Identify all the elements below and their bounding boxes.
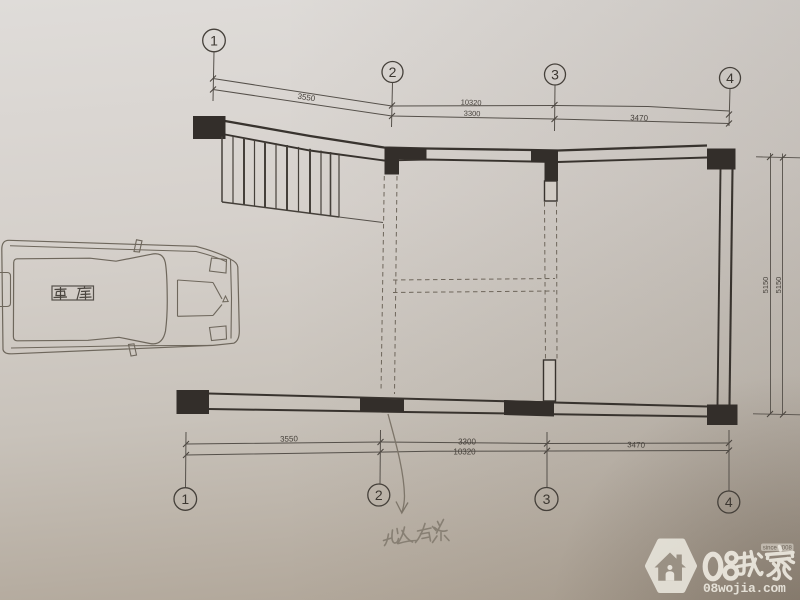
- svg-text:since 2008: since 2008: [763, 546, 793, 552]
- svg-text:3550: 3550: [280, 434, 299, 443]
- svg-text:3: 3: [551, 67, 559, 83]
- svg-text:3300: 3300: [464, 109, 481, 119]
- svg-text:4: 4: [726, 70, 734, 86]
- svg-text:1: 1: [181, 491, 189, 507]
- svg-text:3470: 3470: [627, 440, 646, 450]
- svg-text:08wojia.com: 08wojia.com: [703, 581, 786, 596]
- svg-text:1: 1: [210, 33, 218, 49]
- svg-text:2: 2: [389, 64, 397, 80]
- svg-text:5150: 5150: [774, 277, 783, 294]
- svg-text:3: 3: [543, 491, 551, 507]
- svg-text:3300: 3300: [458, 438, 476, 447]
- svg-text:2: 2: [375, 487, 383, 503]
- svg-text:10320: 10320: [461, 98, 482, 108]
- svg-text:10320: 10320: [453, 448, 476, 457]
- svg-text:4: 4: [725, 494, 733, 510]
- svg-text:5150: 5150: [761, 277, 770, 294]
- svg-text:3550: 3550: [297, 92, 316, 104]
- svg-text:3470: 3470: [630, 113, 649, 123]
